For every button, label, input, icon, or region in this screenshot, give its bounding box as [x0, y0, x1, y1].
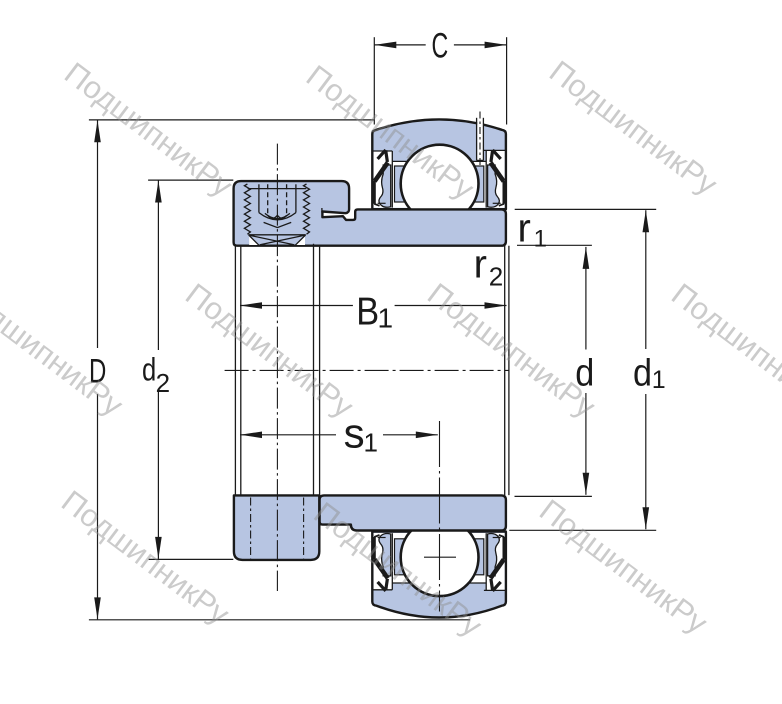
- svg-text:d: d: [633, 351, 652, 394]
- svg-text:1: 1: [378, 302, 394, 333]
- svg-text:2: 2: [156, 368, 170, 398]
- svg-text:C: C: [431, 27, 448, 66]
- svg-text:1: 1: [652, 366, 666, 394]
- svg-text:2: 2: [489, 261, 503, 291]
- svg-text:d: d: [142, 353, 156, 388]
- svg-text:1: 1: [534, 225, 547, 252]
- svg-text:r: r: [518, 207, 531, 251]
- svg-text:r: r: [474, 243, 487, 287]
- svg-text:s: s: [344, 409, 365, 456]
- svg-text:B: B: [356, 290, 379, 334]
- svg-text:1: 1: [364, 428, 378, 458]
